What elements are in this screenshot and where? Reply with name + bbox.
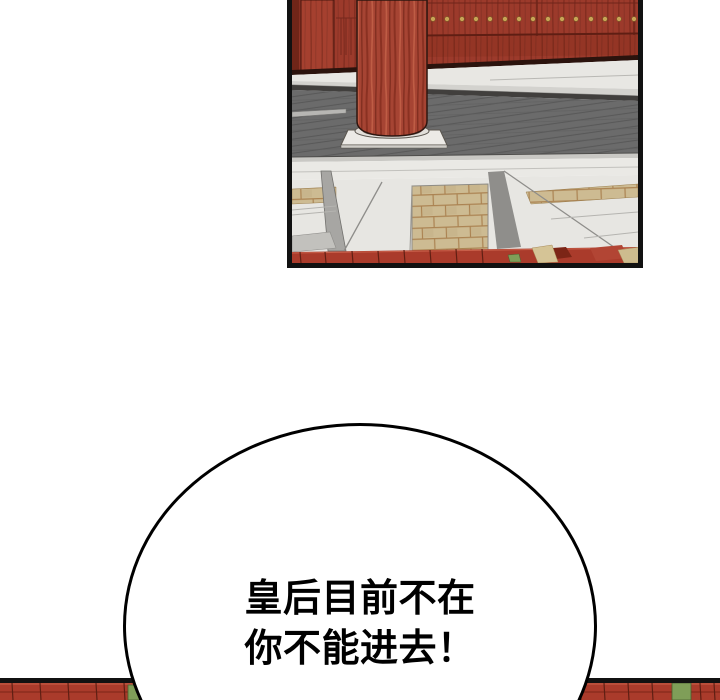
gold-door-studs [431,17,637,22]
tiled-platform-floor [292,90,638,162]
comic-page: 皇后目前不在 你不能进去！ [0,0,720,700]
green-accent-right [672,683,691,700]
palace-panel-art [292,0,638,263]
speech-line-1: 皇后目前不在 [126,574,594,624]
palace-entrance-panel [287,0,643,268]
red-column [357,0,427,136]
stone-steps [292,158,638,253]
speech-bubble: 皇后目前不在 你不能进去！ [123,423,597,700]
speech-line-2: 你不能进去！ [126,624,594,674]
speech-bubble-text: 皇后目前不在 你不能进去！ [126,574,594,674]
